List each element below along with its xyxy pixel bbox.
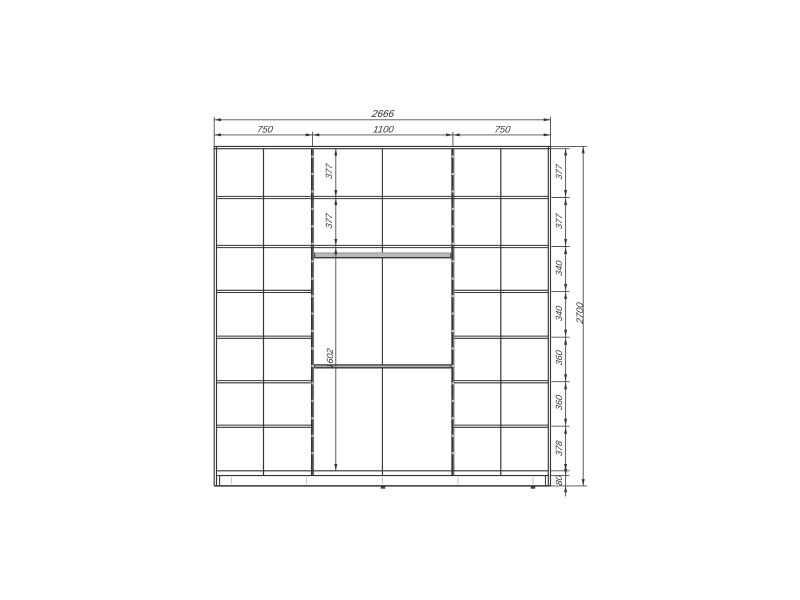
svg-text:360: 360: [554, 394, 564, 411]
svg-text:80: 80: [554, 475, 564, 487]
svg-text:377: 377: [324, 162, 334, 180]
svg-text:340: 340: [554, 260, 564, 277]
svg-text:2700: 2700: [575, 301, 586, 326]
svg-text:377: 377: [554, 212, 564, 230]
svg-text:1100: 1100: [372, 124, 395, 135]
svg-text:750: 750: [494, 124, 512, 135]
svg-text:1602: 1602: [325, 348, 335, 370]
svg-text:360: 360: [554, 349, 564, 366]
svg-text:377: 377: [554, 163, 564, 181]
svg-text:2666: 2666: [370, 109, 395, 120]
svg-text:340: 340: [554, 305, 564, 322]
svg-text:750: 750: [256, 124, 274, 135]
svg-text:378: 378: [554, 440, 564, 457]
svg-text:377: 377: [324, 212, 334, 230]
